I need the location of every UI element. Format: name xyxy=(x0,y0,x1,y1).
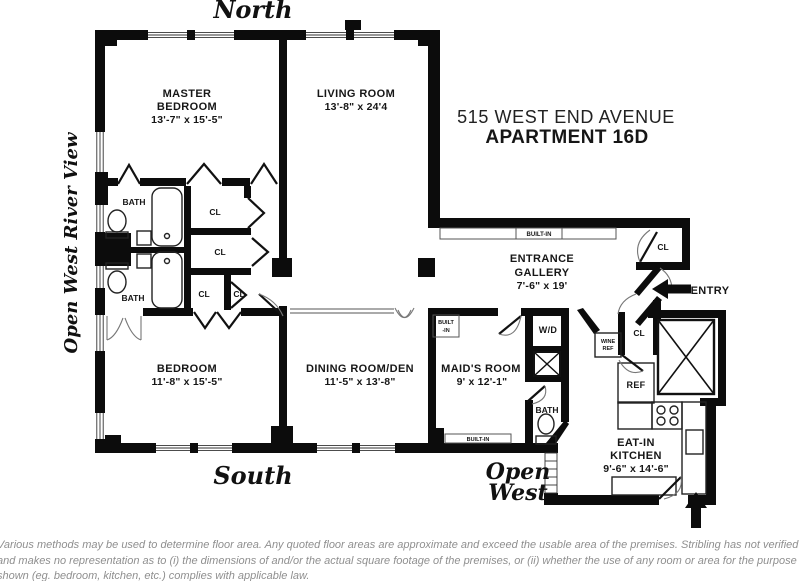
disclaimer-line1: Various methods may be used to determine… xyxy=(0,539,800,551)
river-view-label: Open West River View xyxy=(61,131,82,353)
closet-top-label: CL xyxy=(209,207,220,217)
compass-south-label: South xyxy=(213,461,292,490)
counter-left xyxy=(618,402,652,429)
living-room-east-wall xyxy=(428,30,440,220)
closet-mid-label: CL xyxy=(214,247,225,257)
open-west-label-line2: West xyxy=(488,480,547,506)
elevator-shaft xyxy=(658,320,714,394)
kitchen-dims: 9'-6" x 14'-6" xyxy=(603,463,669,475)
kitchen-label-line1: EAT-IN xyxy=(617,437,655,449)
built-in-gallery-label: BUILT-IN xyxy=(527,232,552,238)
closet-bottom-right-label: CL xyxy=(233,289,244,299)
gallery-north-wall xyxy=(428,218,690,228)
wine-ref-box xyxy=(595,333,621,357)
sink-lower xyxy=(137,254,151,268)
sink-upper xyxy=(137,231,151,245)
entry-arrow-icon xyxy=(652,279,691,299)
master-bedroom-dims: 13'-7" x 15'-5" xyxy=(151,114,223,126)
built-in-maids-wall-label-line1: BUILT xyxy=(438,320,454,326)
kitchen-east-wall xyxy=(706,398,716,505)
entry-label: ENTRY xyxy=(691,285,730,297)
disclaimer-line2: and makes no representation as to (i) th… xyxy=(0,555,797,567)
shaft-small xyxy=(534,352,560,376)
disclaimer-line3: shown (eg. bedroom, kitchen, etc.) compl… xyxy=(0,570,309,581)
kitchen-sink xyxy=(686,430,703,454)
entrance-gallery-label-line1: ENTRANCE xyxy=(510,253,574,265)
kitchen-south-wall xyxy=(544,495,659,505)
toilet-lower xyxy=(108,271,126,293)
toilet-maids xyxy=(538,414,554,434)
master-bedroom-label-line1: MASTER xyxy=(163,88,212,100)
bathtub-upper xyxy=(152,188,182,246)
built-in-maids-wall-label-line2: -IN xyxy=(442,328,449,334)
ref-label: REF xyxy=(627,380,646,390)
entrance-gallery-dims: 7'-6" x 19' xyxy=(517,280,568,292)
floorplan-page: North South Open West Open West River Vi… xyxy=(0,0,800,581)
master-living-divider xyxy=(279,30,287,258)
floorplan-canvas: North South Open West Open West River Vi… xyxy=(0,0,800,581)
dining-maids-divider xyxy=(428,308,436,443)
built-in-maids-south-label: BUILT-IN xyxy=(467,437,490,443)
address-title: 515 WEST END AVENUE xyxy=(457,107,675,127)
entrance-gallery-label-line2: GALLERY xyxy=(515,267,570,279)
washer-dryer-label: W/D xyxy=(539,325,558,335)
maids-south-wall xyxy=(428,443,533,453)
bedroom-label: BEDROOM xyxy=(157,363,217,375)
living-room-label: LIVING ROOM xyxy=(317,88,395,100)
closet-bottom-left-label: CL xyxy=(198,289,209,299)
bathtub-lower xyxy=(152,252,182,308)
bath-maids-label: BATH xyxy=(536,405,559,415)
bath-lower-label: BATH xyxy=(122,293,145,303)
master-bedroom-label-line2: BEDROOM xyxy=(157,101,217,113)
wine-ref-label-line2: REF xyxy=(603,346,615,352)
toilet-upper xyxy=(108,210,126,232)
bedroom-dims: 11'-8" x 15'-5" xyxy=(151,376,222,388)
wine-ref-label-line1: WINE xyxy=(601,339,616,345)
maids-room-label: MAID'S ROOM xyxy=(441,363,521,375)
apartment-title: APARTMENT 16D xyxy=(485,127,648,148)
maids-room-dims: 9' x 12'-1" xyxy=(457,376,508,388)
closet-gallery-label: CL xyxy=(657,242,668,252)
bedroom-dining-divider xyxy=(279,318,287,443)
bath-upper-label: BATH xyxy=(123,197,146,207)
stove xyxy=(652,402,682,429)
closet-kitchen-label: CL xyxy=(633,328,644,338)
kitchen-label-line2: KITCHEN xyxy=(610,450,662,462)
living-room-dims: 13'-8" x 24'4 xyxy=(325,101,388,113)
compass-north-label: North xyxy=(212,0,292,24)
dining-room-dims: 11'-5" x 13'-8" xyxy=(324,376,395,388)
dining-room-label: DINING ROOM/DEN xyxy=(306,363,414,375)
